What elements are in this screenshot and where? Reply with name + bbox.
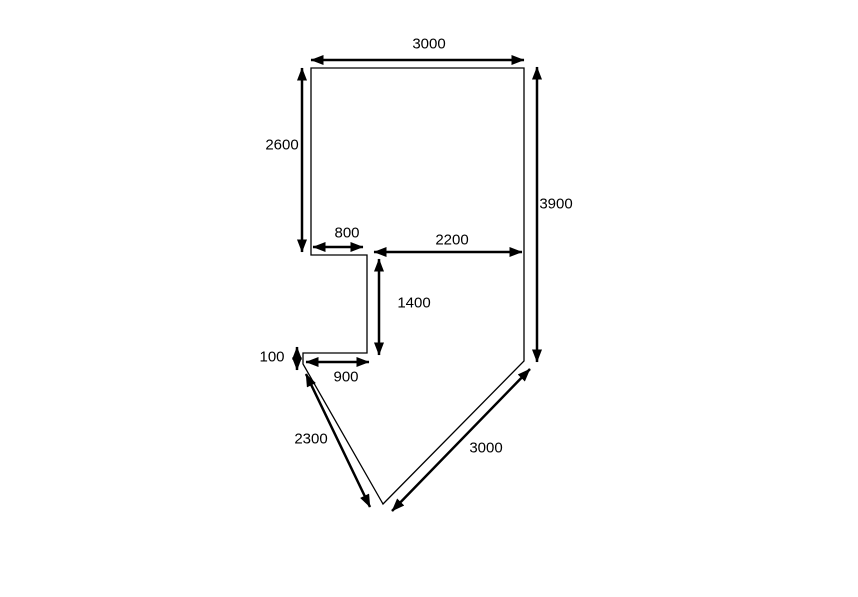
- dim-right-diagonal-line: [392, 369, 530, 511]
- dim-left-diagonal-label: 2300: [294, 431, 327, 448]
- drawing-canvas: 3000260039008002200140010090023003000: [0, 0, 858, 597]
- dim-left-height-label: 2600: [265, 137, 298, 154]
- dimensioned-plan-svg: 3000260039008002200140010090023003000: [0, 0, 858, 597]
- dim-right-diagonal-label: 3000: [469, 440, 502, 457]
- dim-notch-height-label: 1400: [397, 295, 430, 312]
- dim-right-height-label: 3900: [539, 196, 572, 213]
- dim-top-width-label: 3000: [412, 36, 445, 53]
- dim-step-width-label: 800: [334, 225, 359, 242]
- dim-small-step-label: 100: [259, 349, 284, 366]
- dim-mid-width-label: 2200: [435, 232, 468, 249]
- dim-bottom-width-label: 900: [333, 369, 358, 386]
